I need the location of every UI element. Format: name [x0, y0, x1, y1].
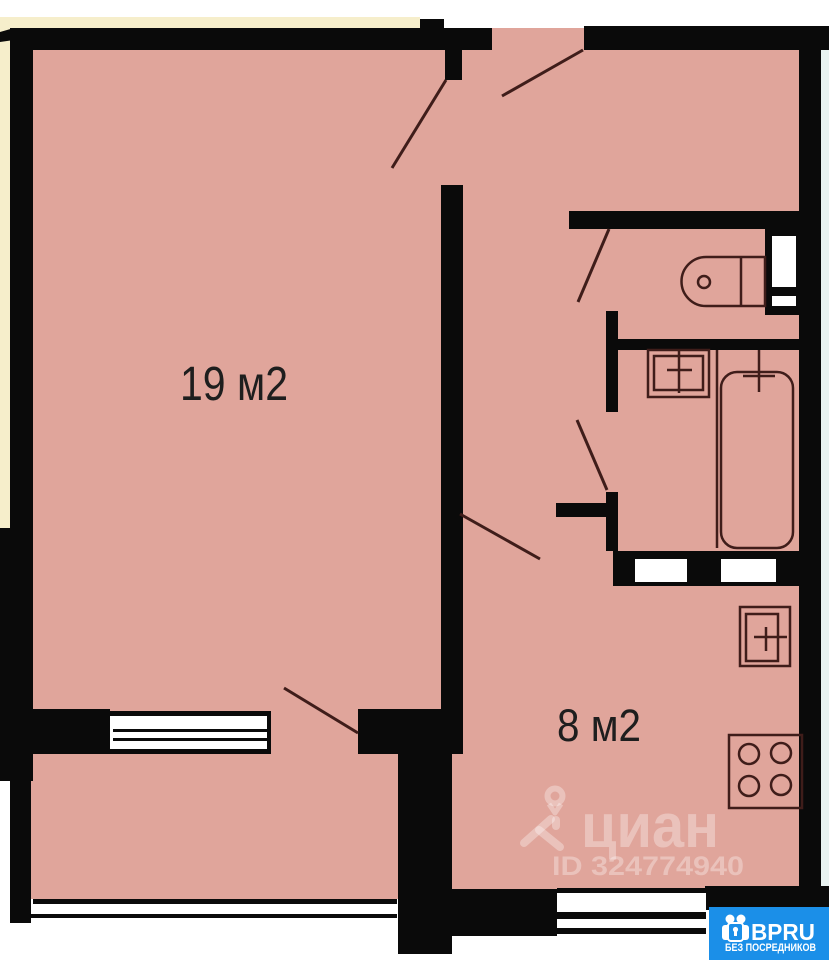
- svg-text:БЕЗ ПОСРЕДНИКОВ: БЕЗ ПОСРЕДНИКОВ: [725, 942, 816, 954]
- svg-text:19 м2: 19 м2: [180, 358, 288, 411]
- svg-text:8 м2: 8 м2: [557, 700, 641, 751]
- svg-text:ID 324774940: ID 324774940: [552, 851, 744, 881]
